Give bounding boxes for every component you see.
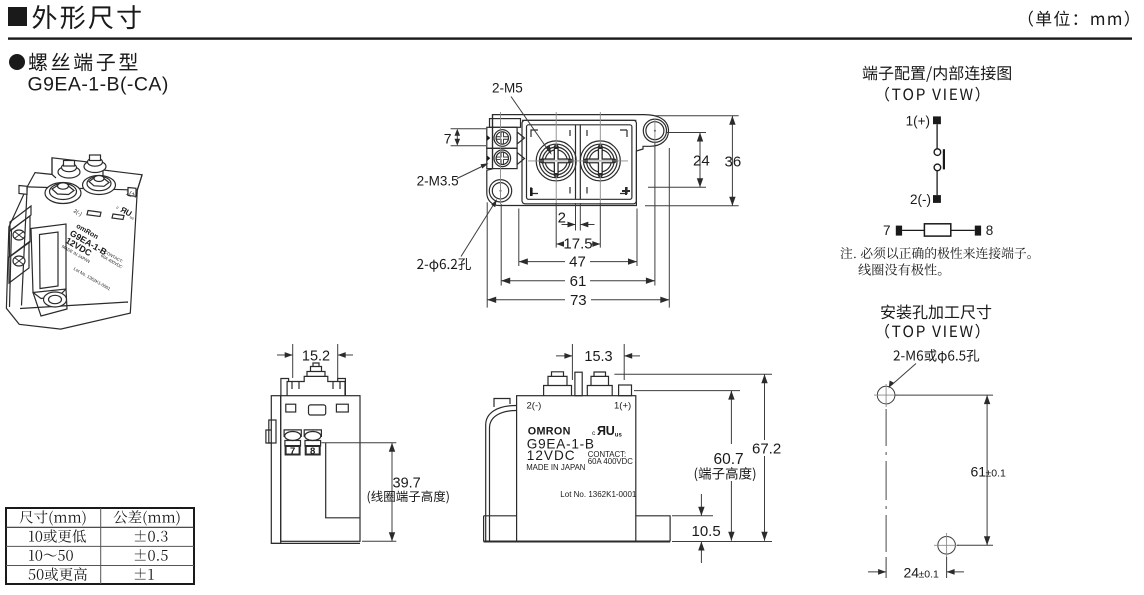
svg-text:12VDC: 12VDC [527,448,576,463]
svg-text:2-M5: 2-M5 [492,81,523,96]
svg-text:U: U [606,424,615,438]
svg-text:36: 36 [725,154,742,171]
svg-text:60A 400VDC: 60A 400VDC [588,457,633,466]
svg-text:±0.1: ±0.1 [986,468,1007,480]
svg-text:8: 8 [986,223,994,238]
svg-text:61: 61 [570,273,587,290]
svg-text:1(+): 1(+) [906,113,930,128]
svg-text:39.7: 39.7 [393,475,421,491]
svg-text:60.7: 60.7 [714,451,744,468]
svg-text:G9EA-1-B(-CA): G9EA-1-B(-CA) [28,74,169,96]
svg-text:1(+): 1(+) [614,401,631,412]
svg-text:24: 24 [693,153,710,170]
svg-text:2: 2 [558,210,566,227]
svg-text:17.5: 17.5 [563,235,592,252]
svg-text:47: 47 [569,254,586,271]
svg-text:73: 73 [570,292,587,309]
svg-text:8: 8 [310,446,315,457]
svg-text:7: 7 [444,130,452,146]
svg-text:2-M3.5: 2-M3.5 [417,173,459,188]
svg-text:MADE IN JAPAN: MADE IN JAPAN [526,463,585,472]
svg-text:10.5: 10.5 [692,523,721,540]
svg-text:2(-): 2(-) [910,192,931,207]
svg-text:2(-): 2(-) [527,401,542,412]
svg-text:±0.1: ±0.1 [919,569,940,581]
svg-text:67.2: 67.2 [752,441,781,458]
svg-text:R: R [597,424,606,438]
svg-text:us: us [615,432,623,438]
svg-text:24: 24 [904,565,920,581]
svg-text:Lot No. 1362K1-0001: Lot No. 1362K1-0001 [560,490,637,499]
svg-text:15.2: 15.2 [302,348,330,364]
svg-text:15.3: 15.3 [584,349,612,365]
svg-text:61: 61 [971,464,987,480]
svg-text:7: 7 [290,446,295,457]
svg-text:7: 7 [883,223,891,238]
